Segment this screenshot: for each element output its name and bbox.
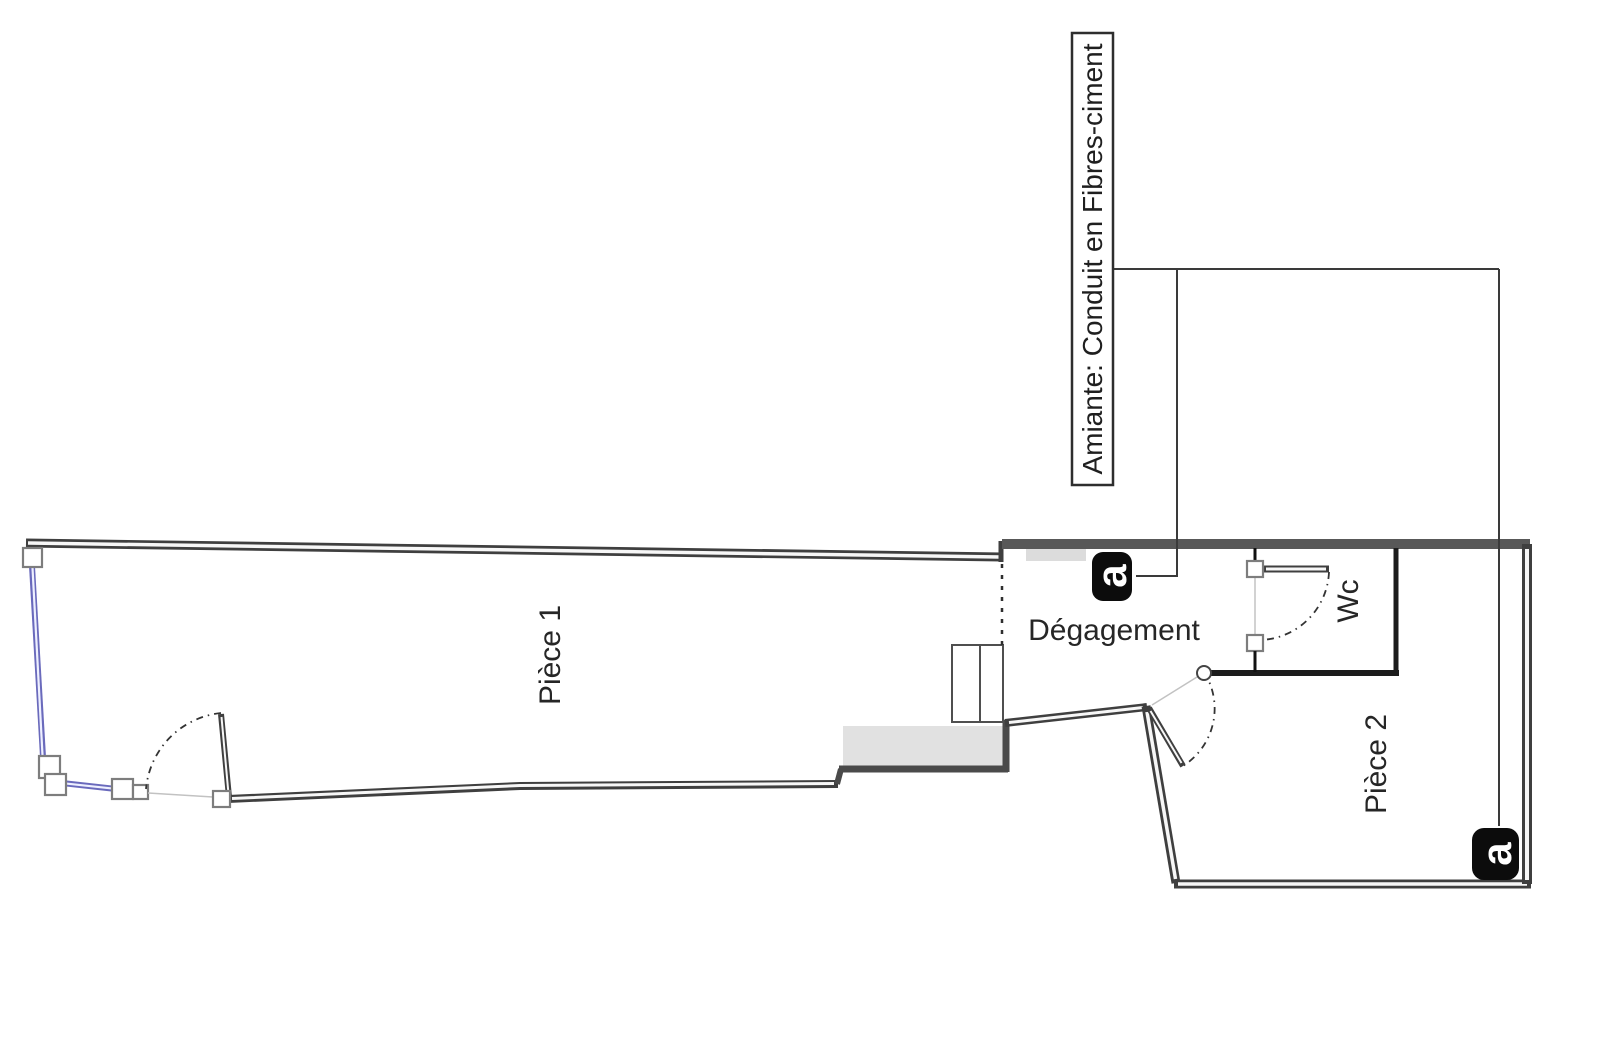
- asbestos-marker-2-letter: a: [1473, 842, 1520, 866]
- wall-top-gray: [1002, 539, 1530, 549]
- wc-door-strike-square: [1247, 635, 1263, 651]
- floor-plan-page: Amiante: Conduit en Fibres-ciment a a Pi…: [0, 0, 1600, 1056]
- room-label-wc: Wc: [1332, 579, 1365, 622]
- door2-swing-arc: [1183, 672, 1215, 766]
- blue-wall-left-core: [33, 568, 43, 755]
- wall-piece2-left-core: [1147, 712, 1176, 879]
- annotation-label: Amiante: Conduit en Fibres-ciment: [1077, 43, 1108, 474]
- door1-closed-line: [148, 793, 213, 797]
- door1-swing-arc: [146, 713, 221, 789]
- room-label-piece1: Pièce 1: [534, 605, 567, 705]
- door2-closed-line: [1152, 677, 1197, 705]
- wc-door-hinge-square: [1247, 561, 1263, 577]
- survey-point-top-left: [23, 548, 42, 567]
- room-label-piece2: Pièce 2: [1360, 714, 1393, 814]
- room-label-degagement: Dégagement: [1028, 614, 1200, 647]
- wall-opening-fill: [1026, 548, 1086, 561]
- floor-plan-drawing: Amiante: Conduit en Fibres-ciment a a Pi…: [0, 0, 1600, 1056]
- wc-door-swing-arc: [1259, 572, 1329, 640]
- leader-to-marker1: [1136, 269, 1177, 576]
- door1-hinge-square: [213, 791, 230, 807]
- floor-fill-step: [843, 726, 1005, 768]
- wall-passage-slant-core: [1009, 708, 1143, 723]
- door2-hinge-circle: [1197, 666, 1211, 680]
- asbestos-marker-1-letter: a: [1088, 564, 1135, 588]
- wall-piece1-top-core: [28, 543, 1000, 557]
- survey-point-door-jamb: [112, 779, 133, 799]
- survey-point-corner-2: [45, 774, 66, 795]
- duct-block: [952, 645, 1003, 722]
